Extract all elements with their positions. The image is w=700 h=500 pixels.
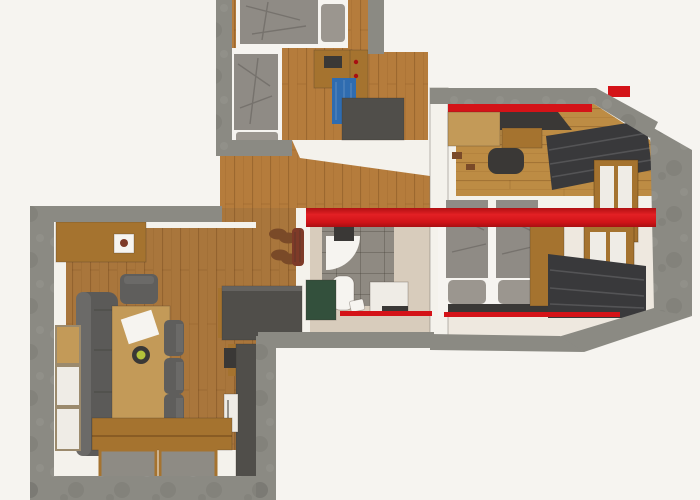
wood-block-under-desk <box>502 128 542 148</box>
wardrobe-knob <box>354 60 358 64</box>
shower-fixture <box>334 226 354 241</box>
window-left-3 <box>56 408 80 450</box>
hanging-jackets <box>292 228 304 266</box>
floor-item-2 <box>466 164 475 170</box>
left-windows <box>56 326 80 450</box>
picture-motif <box>120 239 128 247</box>
chair-back-1 <box>176 324 183 352</box>
floor-plan-render <box>0 0 700 500</box>
small-appliance <box>224 348 236 368</box>
master-window-pane-2 <box>610 232 626 264</box>
wall-living-north <box>30 206 222 222</box>
master-window-pane-1 <box>590 232 606 264</box>
window-left-2 <box>56 366 80 406</box>
desk-chair <box>488 148 524 174</box>
light-wood-cabinet <box>448 112 500 146</box>
wall-bedroom1-east <box>368 0 384 54</box>
dining-chairs-right <box>164 320 184 430</box>
green-cabinet <box>306 280 336 320</box>
toilet-paper <box>349 299 365 313</box>
chair-back-2 <box>176 362 183 390</box>
red-sliver-top-right <box>608 86 630 97</box>
kitchen-counter <box>222 286 302 340</box>
wood-bench <box>92 418 232 450</box>
pillow-horizontal-bed <box>321 4 345 42</box>
bathroom-red-floor-trim <box>340 311 432 316</box>
counter-highlight <box>222 286 302 291</box>
red-wall-stripe <box>448 104 592 112</box>
wall-bathroom-south <box>258 332 434 348</box>
chair-head-back <box>124 276 154 284</box>
master-red-floor-trim <box>444 312 620 317</box>
floor-item-1 <box>452 152 462 159</box>
wall-master-south <box>430 334 584 352</box>
bedroom1-dark-cabinet <box>342 98 404 140</box>
floor-plan-canvas <box>0 0 700 500</box>
red-banner-stripe <box>306 208 656 227</box>
desk-item <box>324 56 342 68</box>
duvet-horizontal-bed <box>240 0 318 44</box>
floor-mat-2 <box>160 450 216 478</box>
wardrobe-knob-2 <box>354 74 358 78</box>
fruit-in-bowl <box>137 351 146 360</box>
window-left-1 <box>56 326 80 364</box>
floor-mat-1 <box>100 450 156 478</box>
master-pillow-1 <box>448 280 486 304</box>
